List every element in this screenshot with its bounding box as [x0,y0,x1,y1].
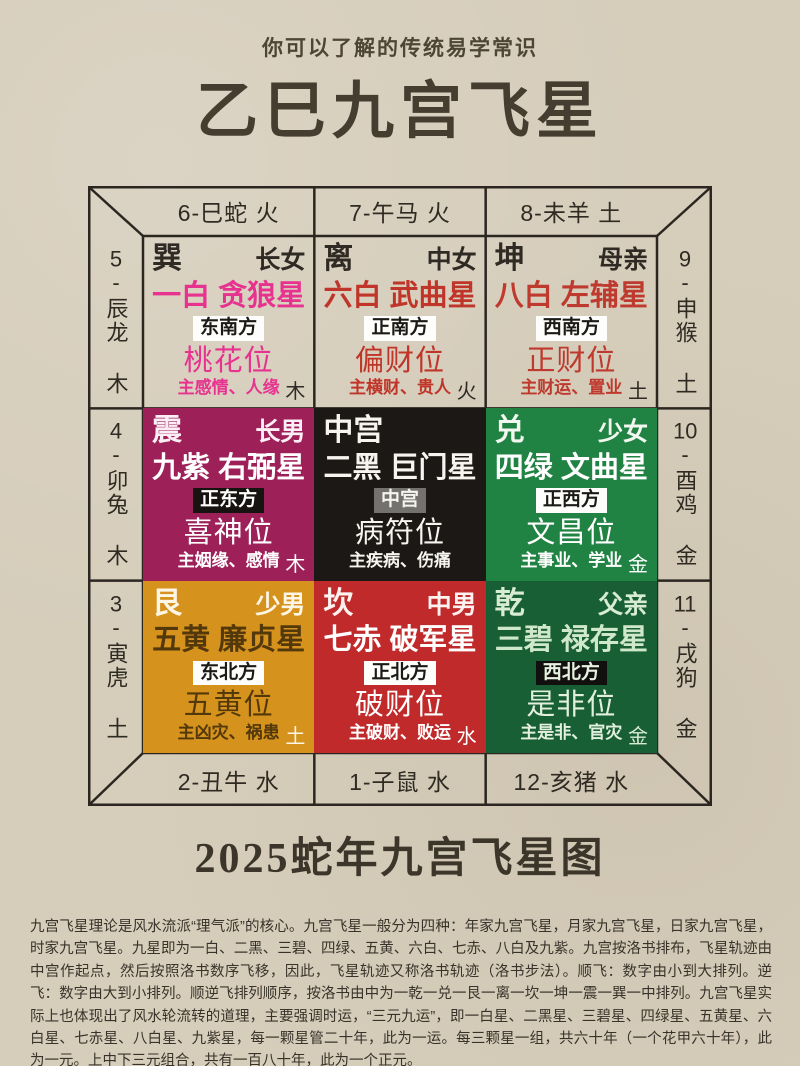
palace-li: 离 中女 六白 武曲星 正南方 偏财位 主横财、贵人 火 [314,236,485,408]
palace-header: 乾 父亲 [495,588,648,620]
position-name: 文昌位 [526,518,616,548]
position-meaning: 主财运、置业 [520,379,622,398]
palace-center: 中宫 二黑 巨门星 中宫 病符位 主疾病、伤痛 [314,408,485,580]
trigram-label: 坎 [323,588,353,620]
palace-kan: 坎 中男 七赤 破军星 正北方 破财位 主破财、败运 水 [314,581,485,753]
direction-badge: 正南方 [364,316,435,341]
element-label: 水 [457,720,477,749]
trigram-label: 离 [323,243,353,275]
palace-header: 艮 少男 [152,588,305,620]
position-meaning: 主破财、败运 [349,724,451,743]
palace-header: 离 中女 [323,243,476,275]
description-paragraph: 九宫飞星理论是风水流派“理气派”的核心。九宫飞星一般分为四种：年家九宫飞星，月家… [30,916,772,1066]
direction-badge: 正北方 [364,661,435,686]
position-meaning: 主疾病、伤痛 [349,552,451,571]
direction-badge: 正西方 [536,488,607,513]
element-label: 金 [628,720,648,749]
trigram-label: 乾 [495,588,525,620]
footer-title: 2025蛇年九宫飞星图 [0,824,800,885]
star-name: 四绿 文曲星 [495,453,648,483]
frame-label-text: -戌狗 金 [669,615,701,741]
star-name: 六白 武曲星 [323,281,476,311]
position-name: 病符位 [355,518,445,548]
direction-badge: 东南方 [193,316,264,341]
frame-label-top-2: 7-午马 火 [314,186,485,236]
trigram-label: 震 [152,415,182,447]
direction-badge: 正东方 [193,488,264,513]
direction-badge: 东北方 [193,661,264,686]
element-label: 土 [285,720,305,749]
element-label: 火 [457,375,477,404]
frame-label-bottom-2: 1-子鼠 水 [314,753,485,806]
family-member-label: 少女 [598,419,648,445]
page-title: 乙巳九宫飞星 [0,60,800,150]
palace-qian: 乾 父亲 三碧 禄存星 西北方 是非位 主是非、官灾 金 [486,581,657,753]
family-member-label: 长男 [255,419,305,445]
flying-star-board: 6-巳蛇 火 7-午马 火 8-未羊 土 2-丑牛 水 1-子鼠 水 12-亥猪… [88,186,712,806]
star-name: 二黑 巨门星 [323,453,476,483]
page: 你可以了解的传统易学常识 乙巳九宫飞星 6-巳蛇 火 7-午马 火 8-未羊 土… [0,0,800,1066]
trigram-label: 中宫 [323,415,383,447]
direction-badge: 中宫 [374,488,426,513]
element-label: 金 [628,548,648,577]
trigram-label: 坤 [495,243,525,275]
frame-label-number: 4 [103,420,129,442]
palace-header: 坎 中男 [323,588,476,620]
position-meaning: 主凶灾、祸患 [178,724,280,743]
frame-label-number: 9 [672,248,698,270]
trigram-label: 兑 [495,415,525,447]
star-name: 一白 贪狼星 [152,281,305,311]
palace-dui: 兑 少女 四绿 文曲星 正西方 文昌位 主事业、学业 金 [486,408,657,580]
position-name: 偏财位 [355,346,445,376]
palace-xun: 巽 长女 一白 贪狼星 东南方 桃花位 主感情、人缘 木 [143,236,314,408]
frame-label-number: 3 [103,593,129,615]
frame-label-top-1: 6-巳蛇 火 [143,186,314,236]
family-member-label: 父亲 [598,592,648,618]
trigram-label: 巽 [152,243,182,275]
element-label: 木 [285,548,305,577]
element-label: 土 [628,375,648,404]
position-meaning: 主感情、人缘 [178,379,280,398]
palace-zhen: 震 长男 九紫 右弼星 正东方 喜神位 主姻缘、感情 木 [143,408,314,580]
star-name: 九紫 右弼星 [152,453,305,483]
frame-label-left-3: 3-寅虎 土 [88,581,143,753]
frame-label-bottom-1: 2-丑牛 水 [143,753,314,806]
star-name: 七赤 破军星 [323,625,476,655]
position-name: 喜神位 [184,518,274,548]
family-member-label: 中女 [427,247,477,273]
palace-kun: 坤 母亲 八白 左辅星 西南方 正财位 主财运、置业 土 [486,236,657,408]
frame-label-number: 10 [672,420,698,442]
position-name: 正财位 [526,346,616,376]
direction-badge: 西北方 [536,661,607,686]
position-meaning: 主是非、官灾 [520,724,622,743]
frame-label-text: -卯兔 木 [100,442,132,568]
star-name: 八白 左辅星 [495,281,648,311]
frame-label-right-2: 10-酉鸡 金 [657,408,712,580]
star-name: 五黄 廉贞星 [152,625,305,655]
palace-header: 震 长男 [152,415,305,447]
frame-label-number: 5 [103,248,129,270]
frame-label-left-2: 4-卯兔 木 [88,408,143,580]
direction-badge: 西南方 [536,316,607,341]
family-member-label: 母亲 [598,247,648,273]
position-name: 桃花位 [184,346,274,376]
trigram-label: 艮 [152,588,182,620]
element-label: 木 [285,375,305,404]
frame-label-bottom-3: 12-亥猪 水 [486,753,657,806]
palace-header: 兑 少女 [495,415,648,447]
frame-label-text: -辰龙 木 [100,270,132,396]
family-member-label: 少男 [255,592,305,618]
frame-label-text: -酉鸡 金 [669,442,701,568]
position-name: 破财位 [355,690,445,720]
position-meaning: 主事业、学业 [520,552,622,571]
position-name: 五黄位 [184,690,274,720]
position-name: 是非位 [526,690,616,720]
frame-label-number: 11 [672,593,698,615]
page-subtitle: 你可以了解的传统易学常识 [0,32,800,62]
palace-header: 中宫 [323,415,476,447]
family-member-label: 长女 [255,247,305,273]
frame-label-left-1: 5-辰龙 木 [88,236,143,408]
position-meaning: 主横财、贵人 [349,379,451,398]
palace-gen: 艮 少男 五黄 廉贞星 东北方 五黄位 主凶灾、祸患 土 [143,581,314,753]
frame-label-right-1: 9-申猴 土 [657,236,712,408]
frame-label-right-3: 11-戌狗 金 [657,581,712,753]
frame-label-top-3: 8-未羊 土 [486,186,657,236]
star-name: 三碧 禄存星 [495,625,648,655]
palace-header: 坤 母亲 [495,243,648,275]
frame-label-text: -申猴 土 [669,270,701,396]
frame-label-text: -寅虎 土 [100,615,132,741]
position-meaning: 主姻缘、感情 [178,552,280,571]
palace-header: 巽 长女 [152,243,305,275]
family-member-label: 中男 [427,592,477,618]
